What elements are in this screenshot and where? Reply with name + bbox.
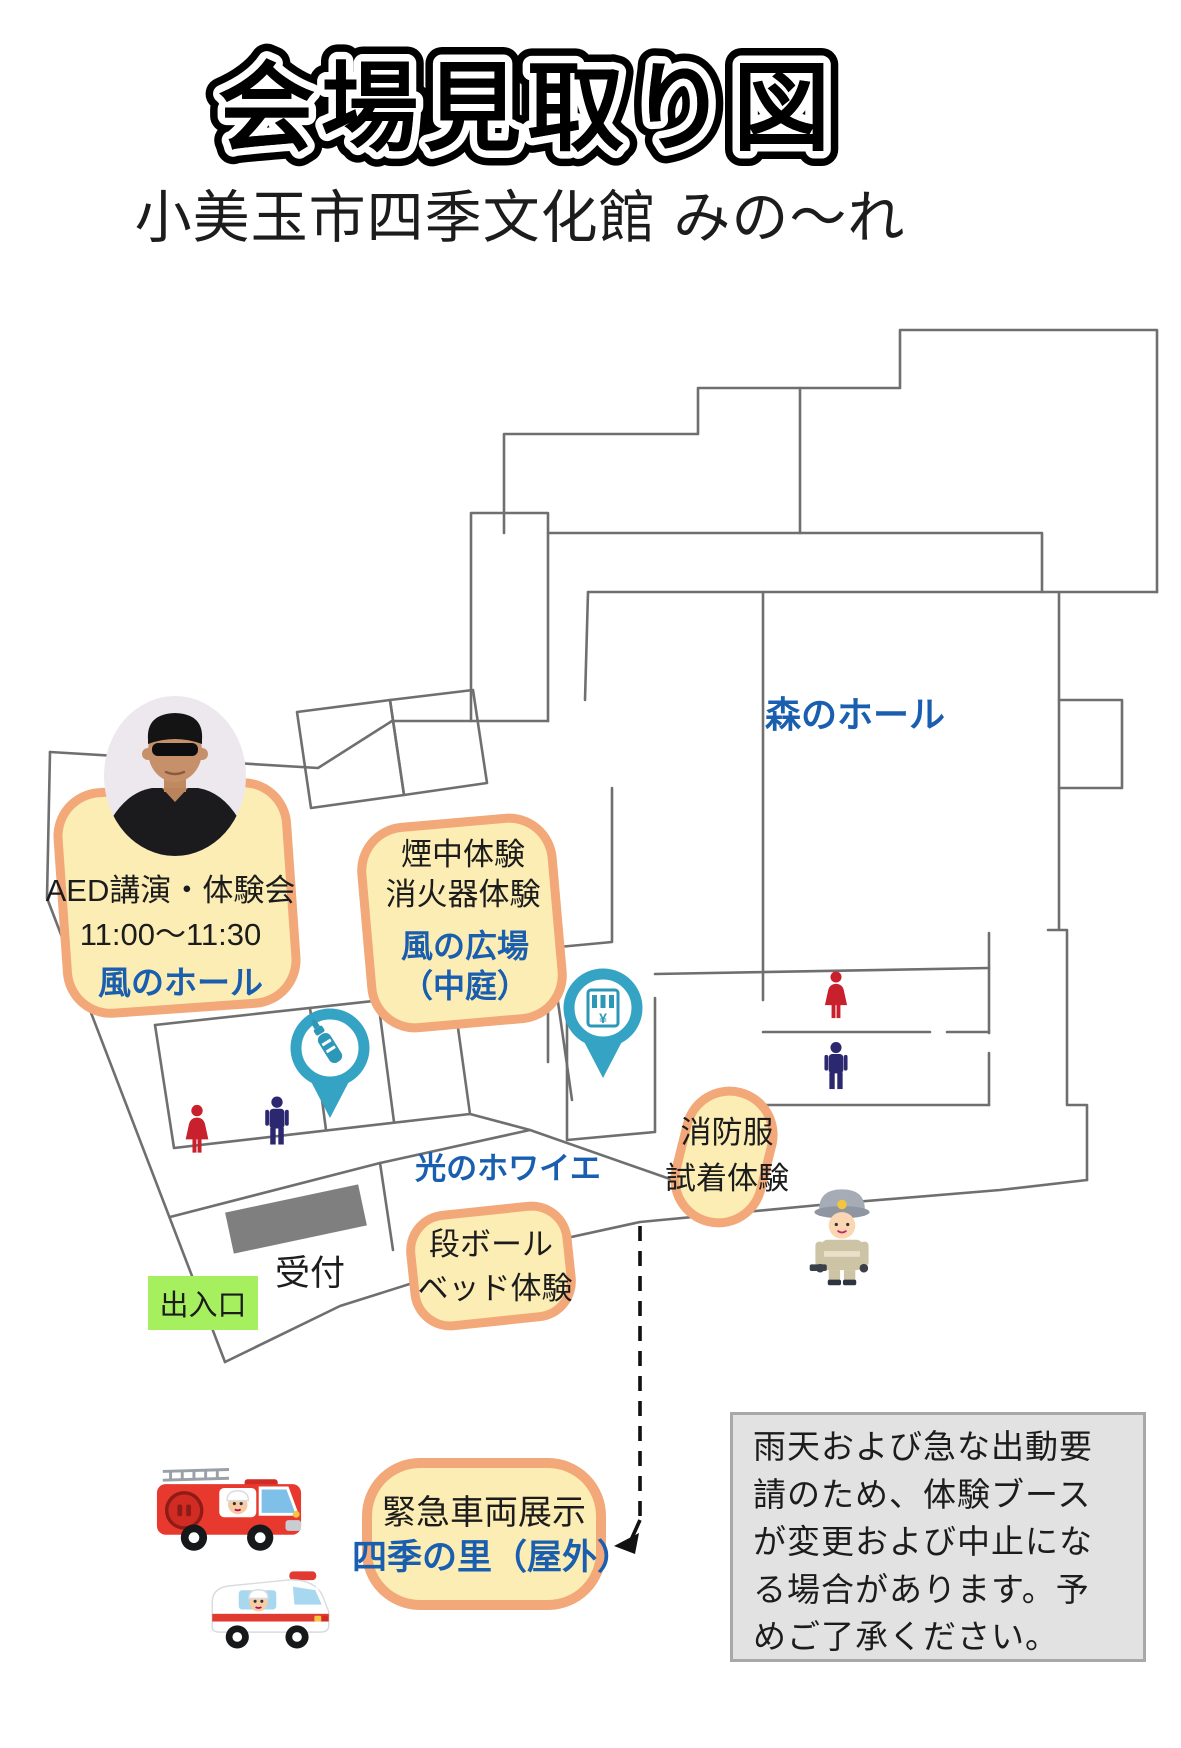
route-arrow	[614, 1226, 640, 1554]
cardboard-bed-line1: 段ボール	[408, 1226, 574, 1265]
venue-name-subtitle: 小美玉市四季文化館 みの〜れ	[0, 172, 1040, 254]
wall-top-band	[548, 533, 1042, 592]
cardboard-bed-booth-highlight	[402, 1198, 580, 1335]
firefighter-character	[804, 1180, 880, 1288]
wall-right-bump	[1059, 700, 1122, 788]
wall-midroom-2	[390, 690, 487, 795]
hikari-foyer-label: 光のホワイエ	[394, 1150, 622, 1189]
baby-bottle-pin	[285, 1004, 375, 1122]
reception-label: 受付	[252, 1252, 368, 1296]
speaker-sunglasses	[152, 743, 198, 756]
aed-booth-place: 風のホール	[28, 962, 333, 1003]
speaker-photo	[104, 696, 246, 856]
man-restroom-icon	[820, 1042, 852, 1090]
smoke-booth-line2: 消火器体験	[358, 876, 568, 915]
wall-top-lobes	[504, 330, 1157, 592]
wall-foyer-join	[470, 1114, 530, 1130]
wall-left-tower	[471, 513, 548, 721]
vending-yen-symbol: ¥	[599, 1010, 607, 1026]
weather-notice-box: 雨天および急な出動要請のため、体験ブースが変更および中止になる場合があります。予…	[730, 1412, 1146, 1662]
smoke-booth-place2: （中庭）	[360, 966, 570, 1006]
emergency-vehicles-name: 緊急車両展示	[368, 1492, 600, 1535]
fire-suit-line2: 試着体験	[652, 1160, 802, 1199]
vending-machine-pin: ¥	[558, 964, 648, 1082]
mori-hall-label: 森のホール	[735, 692, 975, 737]
cardboard-bed-line2: ベッド体験	[404, 1270, 586, 1309]
wall-reception-side	[380, 1163, 393, 1250]
aed-booth-time: 11:00〜11:30	[28, 916, 313, 955]
entrance-label: 出入口	[159, 1282, 246, 1324]
smoke-booth-line1: 煙中体験	[363, 836, 563, 875]
woman-restroom-icon	[819, 971, 853, 1019]
weather-notice-text: 雨天および急な出動要請のため、体験ブースが変更および中止になる場合があります。予…	[753, 1428, 1093, 1655]
poster-title-fill: 会場見取り図	[218, 54, 836, 163]
venue-map-poster: 会場見取り図 会場見取り図 会場見取り図 小美玉市四季文化館 みの〜れ	[0, 0, 1181, 1748]
aed-booth-name: AED講演・体験会	[28, 872, 313, 911]
wall-corridor-left	[585, 592, 588, 700]
entrance-box: 出入口	[148, 1276, 258, 1330]
smoke-booth-place1: 風の広場	[360, 926, 570, 966]
man-restroom-icon	[261, 1096, 293, 1146]
ambulance-illustration	[198, 1556, 344, 1662]
fire-suit-line1: 消防服	[662, 1114, 792, 1153]
wall-midroom-1	[297, 700, 404, 808]
fire-truck-illustration	[150, 1450, 308, 1562]
woman-restroom-icon	[180, 1104, 214, 1154]
emergency-vehicles-place: 四季の里（屋外）	[352, 1536, 616, 1580]
poster-title: 会場見取り図 会場見取り図 会場見取り図	[0, 20, 1181, 180]
wall-hall-right	[1048, 592, 1087, 1180]
